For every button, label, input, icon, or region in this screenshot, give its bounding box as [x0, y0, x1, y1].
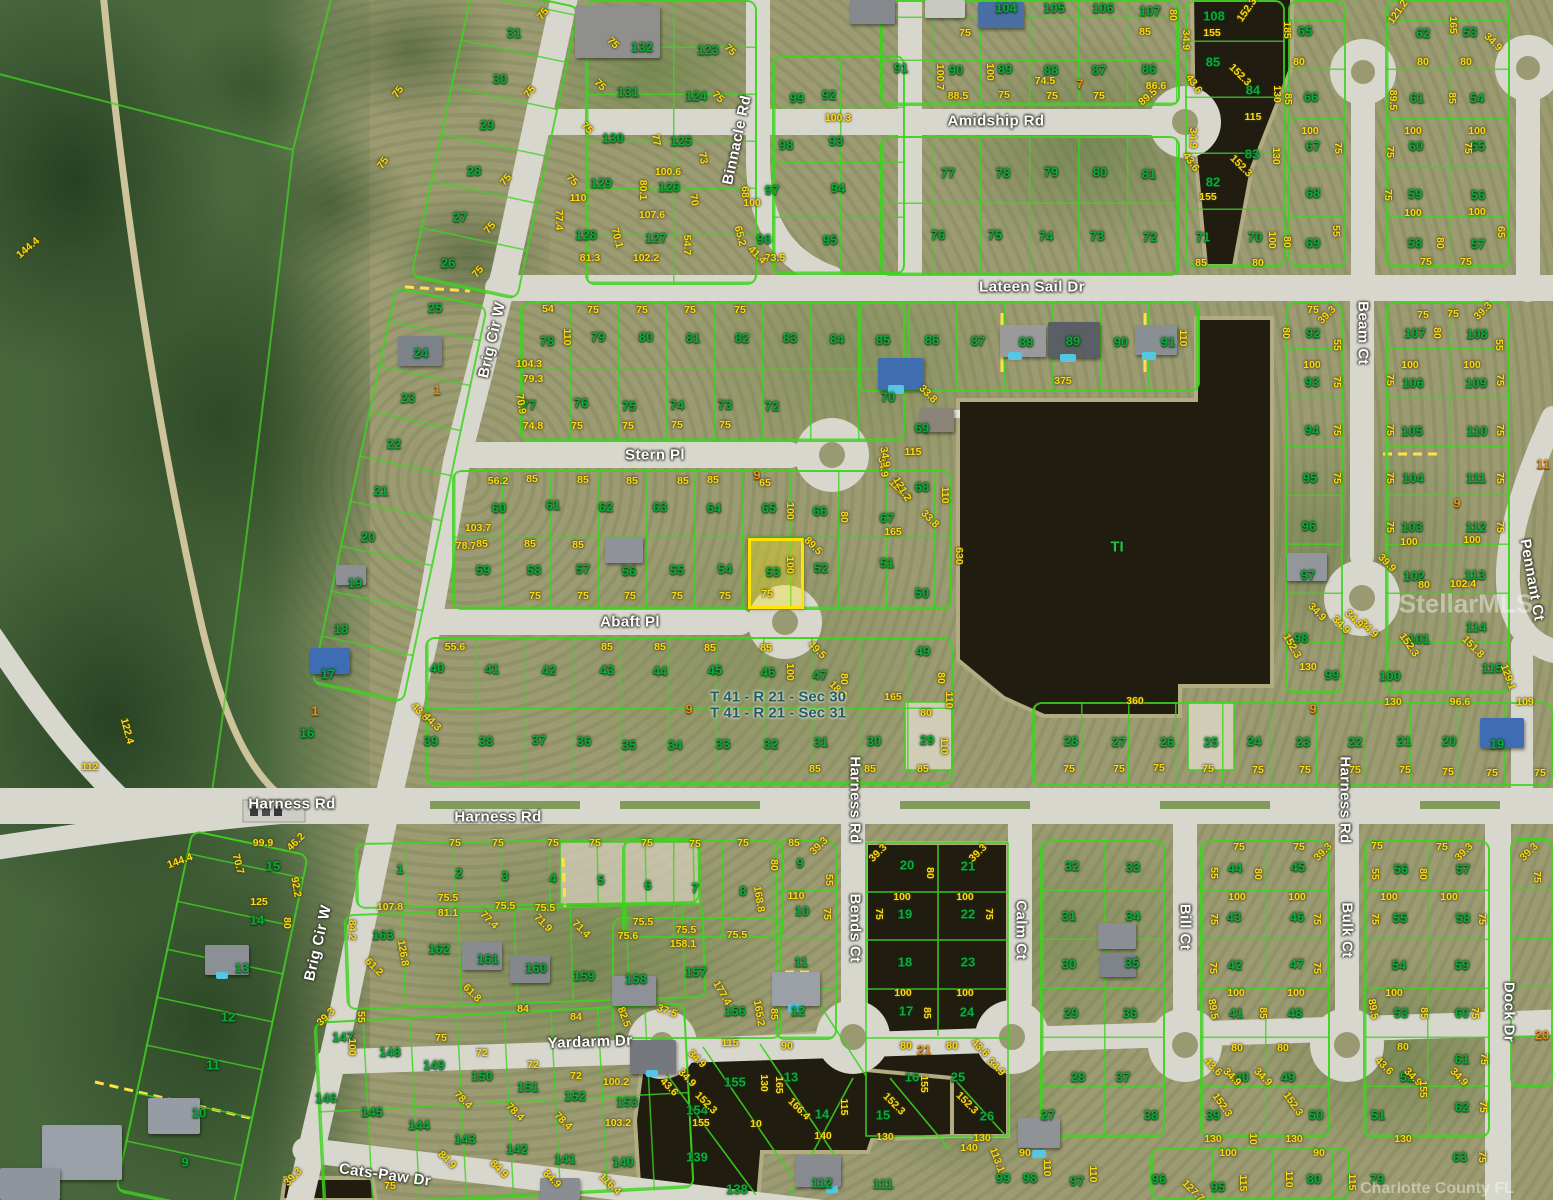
- parcel-block: [1185, 0, 1285, 268]
- house: [1287, 553, 1327, 581]
- parcel-block: [1288, 0, 1346, 268]
- house: [1135, 325, 1177, 355]
- house: [148, 1098, 200, 1134]
- pool: [1060, 354, 1076, 362]
- house: [772, 972, 820, 1006]
- house: [1000, 325, 1046, 357]
- pool: [888, 385, 904, 394]
- parcel-block: [425, 637, 953, 785]
- house: [462, 942, 502, 970]
- pool: [216, 972, 228, 979]
- house: [605, 537, 643, 563]
- parcel-block: [1032, 702, 1553, 786]
- pool: [1008, 352, 1022, 360]
- house: [0, 1168, 60, 1200]
- parcel-block: [1385, 302, 1510, 694]
- pool: [1032, 1150, 1046, 1158]
- house: [205, 945, 249, 975]
- house: [1018, 1118, 1060, 1148]
- parcel-block: [1385, 0, 1510, 268]
- house: [540, 1178, 580, 1200]
- pool: [646, 1070, 658, 1077]
- parcel-block: [1200, 840, 1330, 1138]
- parcel-block: [1285, 302, 1343, 694]
- selected-parcel[interactable]: [748, 538, 804, 609]
- house: [925, 0, 965, 18]
- pool: [788, 1004, 802, 1012]
- parcel-block: [775, 840, 837, 1040]
- house: [795, 1155, 841, 1187]
- parcel-block: [452, 470, 952, 610]
- pool: [1142, 352, 1156, 360]
- house: [1098, 923, 1136, 949]
- map-canvas[interactable]: Amidship RdLateen Sail DrBinnacle RdBrig…: [0, 0, 1553, 1200]
- house: [1480, 718, 1524, 748]
- road-pennant-ct: [1508, 418, 1553, 652]
- parcel-block: [880, 136, 1180, 276]
- house: [575, 6, 660, 58]
- house: [510, 955, 550, 983]
- pool: [826, 1186, 838, 1193]
- house: [850, 0, 895, 24]
- forest-trail: [103, 0, 310, 814]
- road-harness-west2: [0, 636, 132, 810]
- parcel-block: [1150, 1148, 1350, 1200]
- house: [1100, 953, 1136, 977]
- house: [310, 648, 350, 674]
- house: [920, 408, 954, 432]
- house: [630, 1040, 676, 1074]
- parcel-block: [1363, 840, 1490, 1138]
- parcel-block: [520, 302, 905, 442]
- parcel-block: [1040, 840, 1165, 1138]
- house: [1048, 322, 1100, 358]
- house: [612, 976, 656, 1006]
- house: [398, 336, 442, 366]
- house: [336, 565, 366, 585]
- house: [978, 2, 1024, 28]
- parcel-block: [1510, 838, 1553, 1088]
